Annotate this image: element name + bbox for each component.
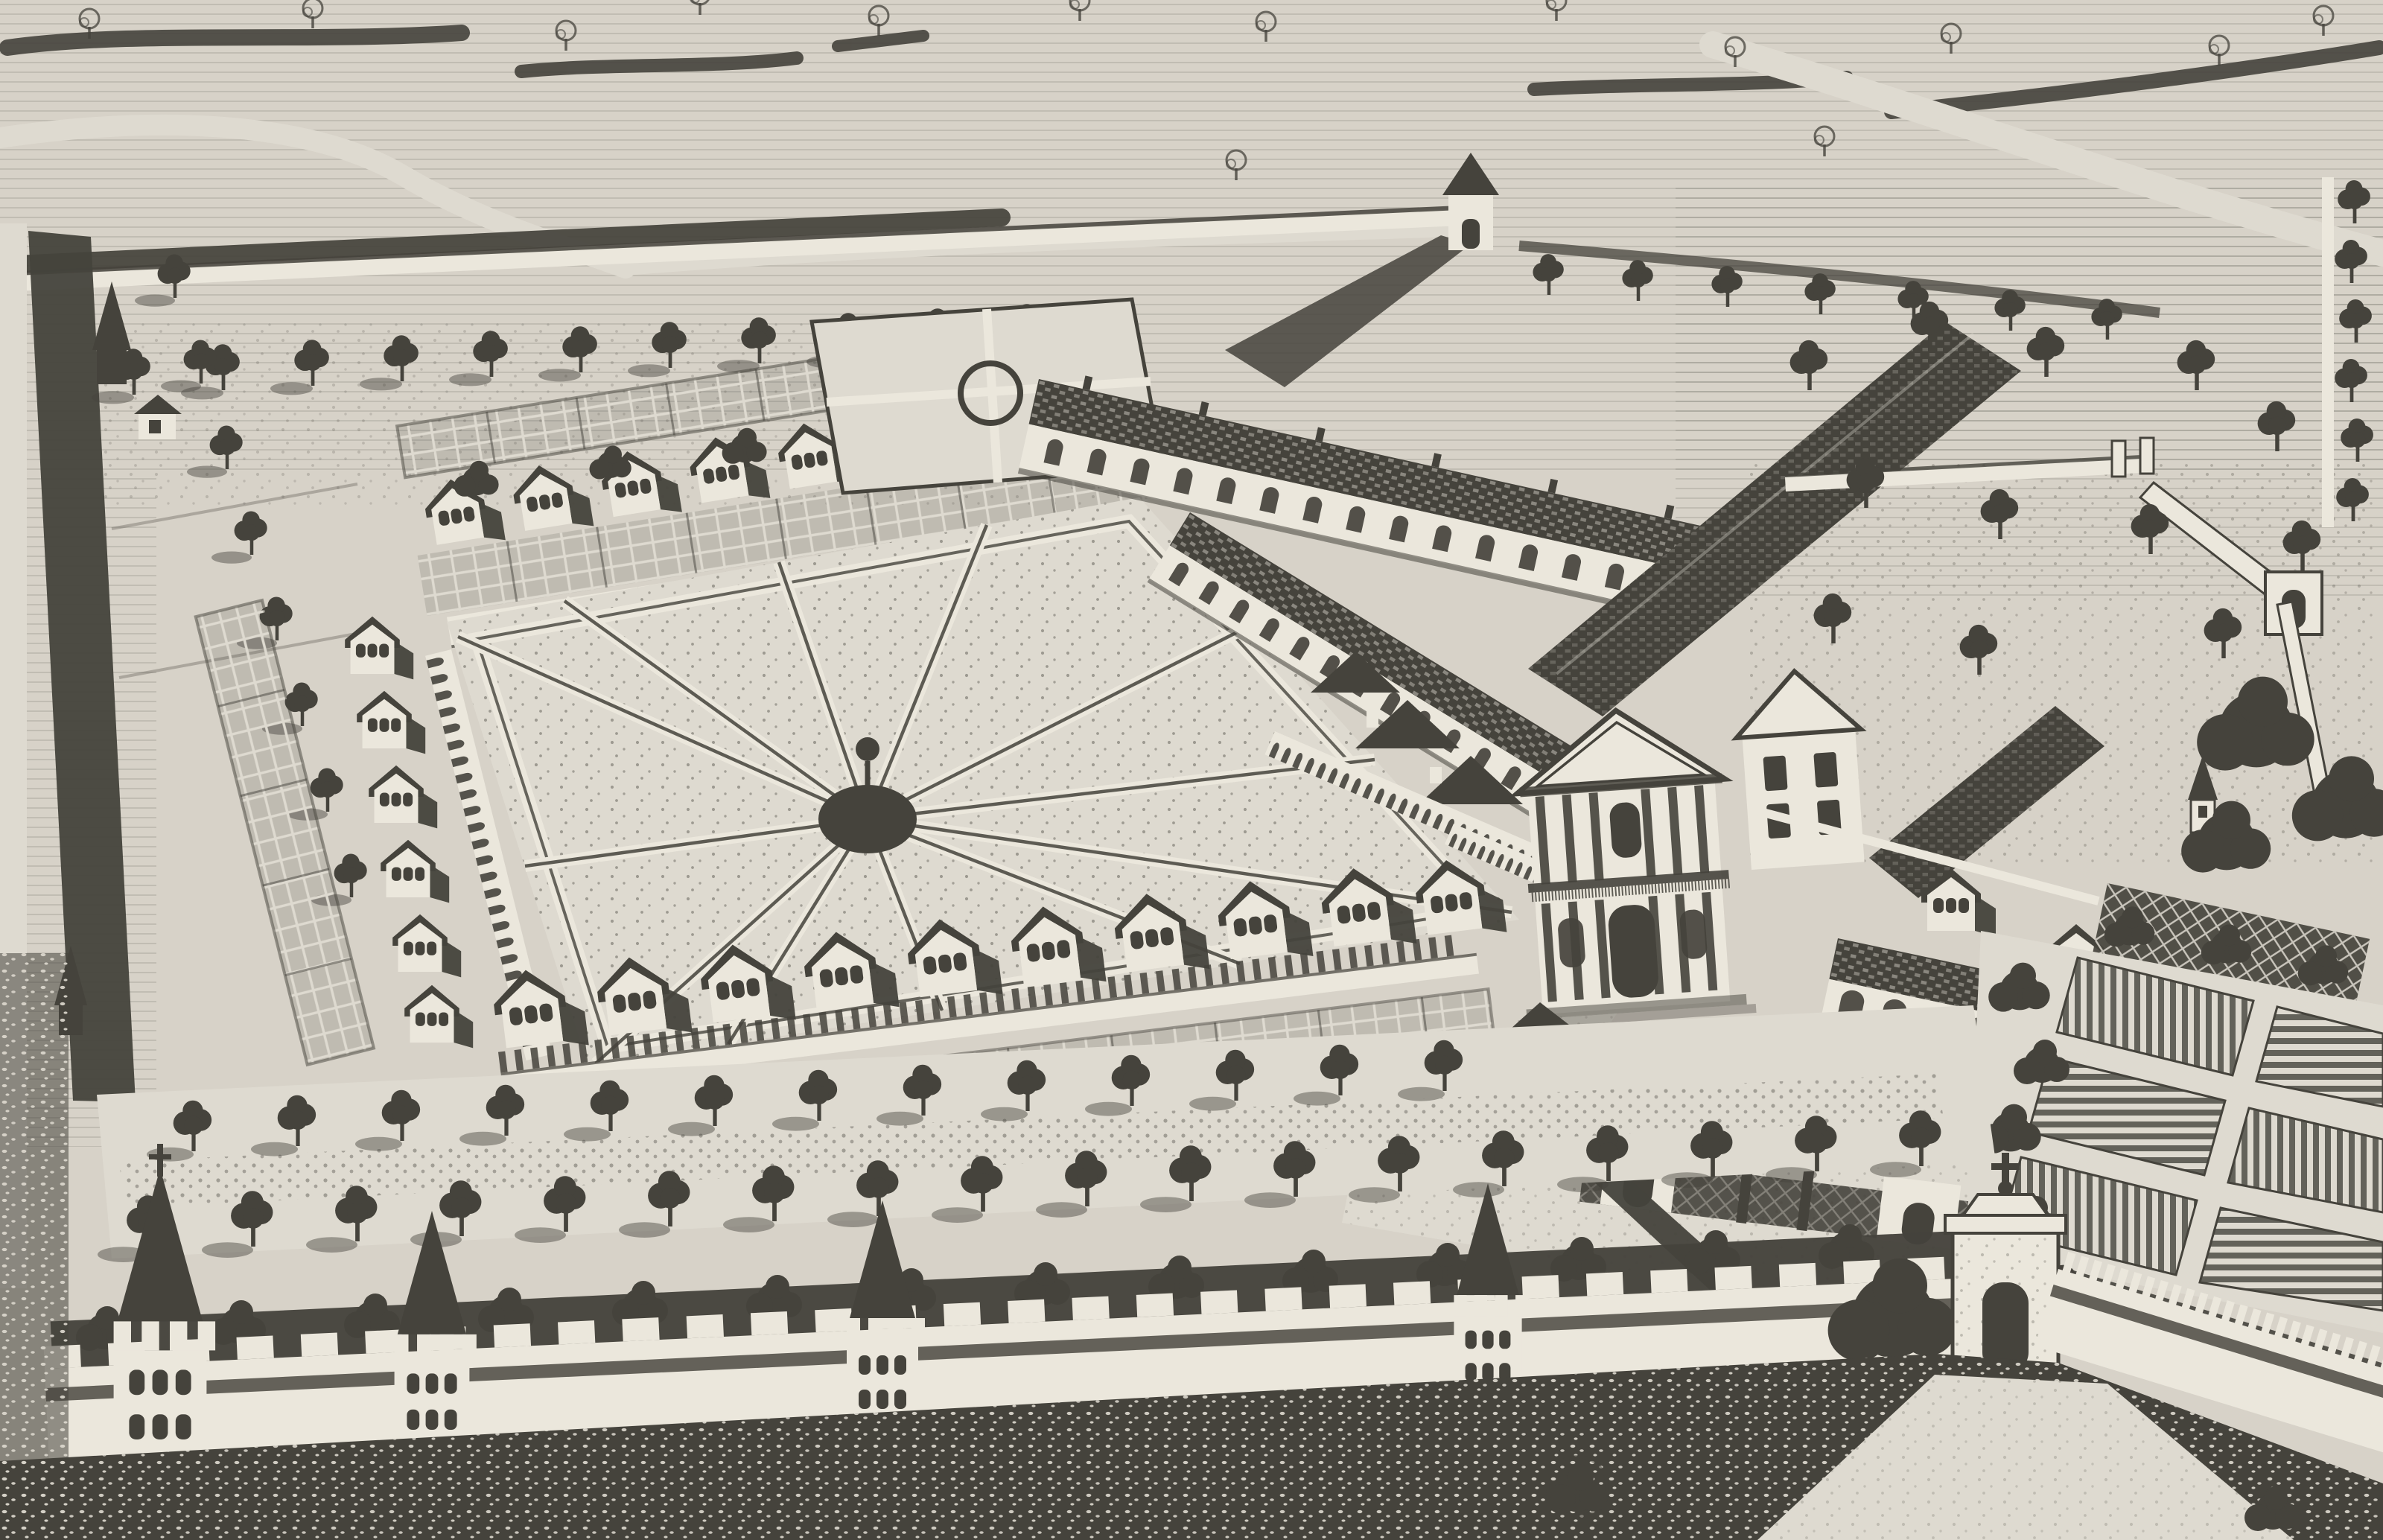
gate-pier: [2112, 441, 2125, 477]
engraving-scene: [0, 0, 2383, 1540]
upper-arch-window: [1609, 801, 1642, 859]
engraving-plate: [0, 0, 2383, 1540]
portal: [1607, 903, 1659, 999]
east-boundary-wall: [2322, 177, 2334, 527]
gate-pier: [2140, 438, 2154, 474]
